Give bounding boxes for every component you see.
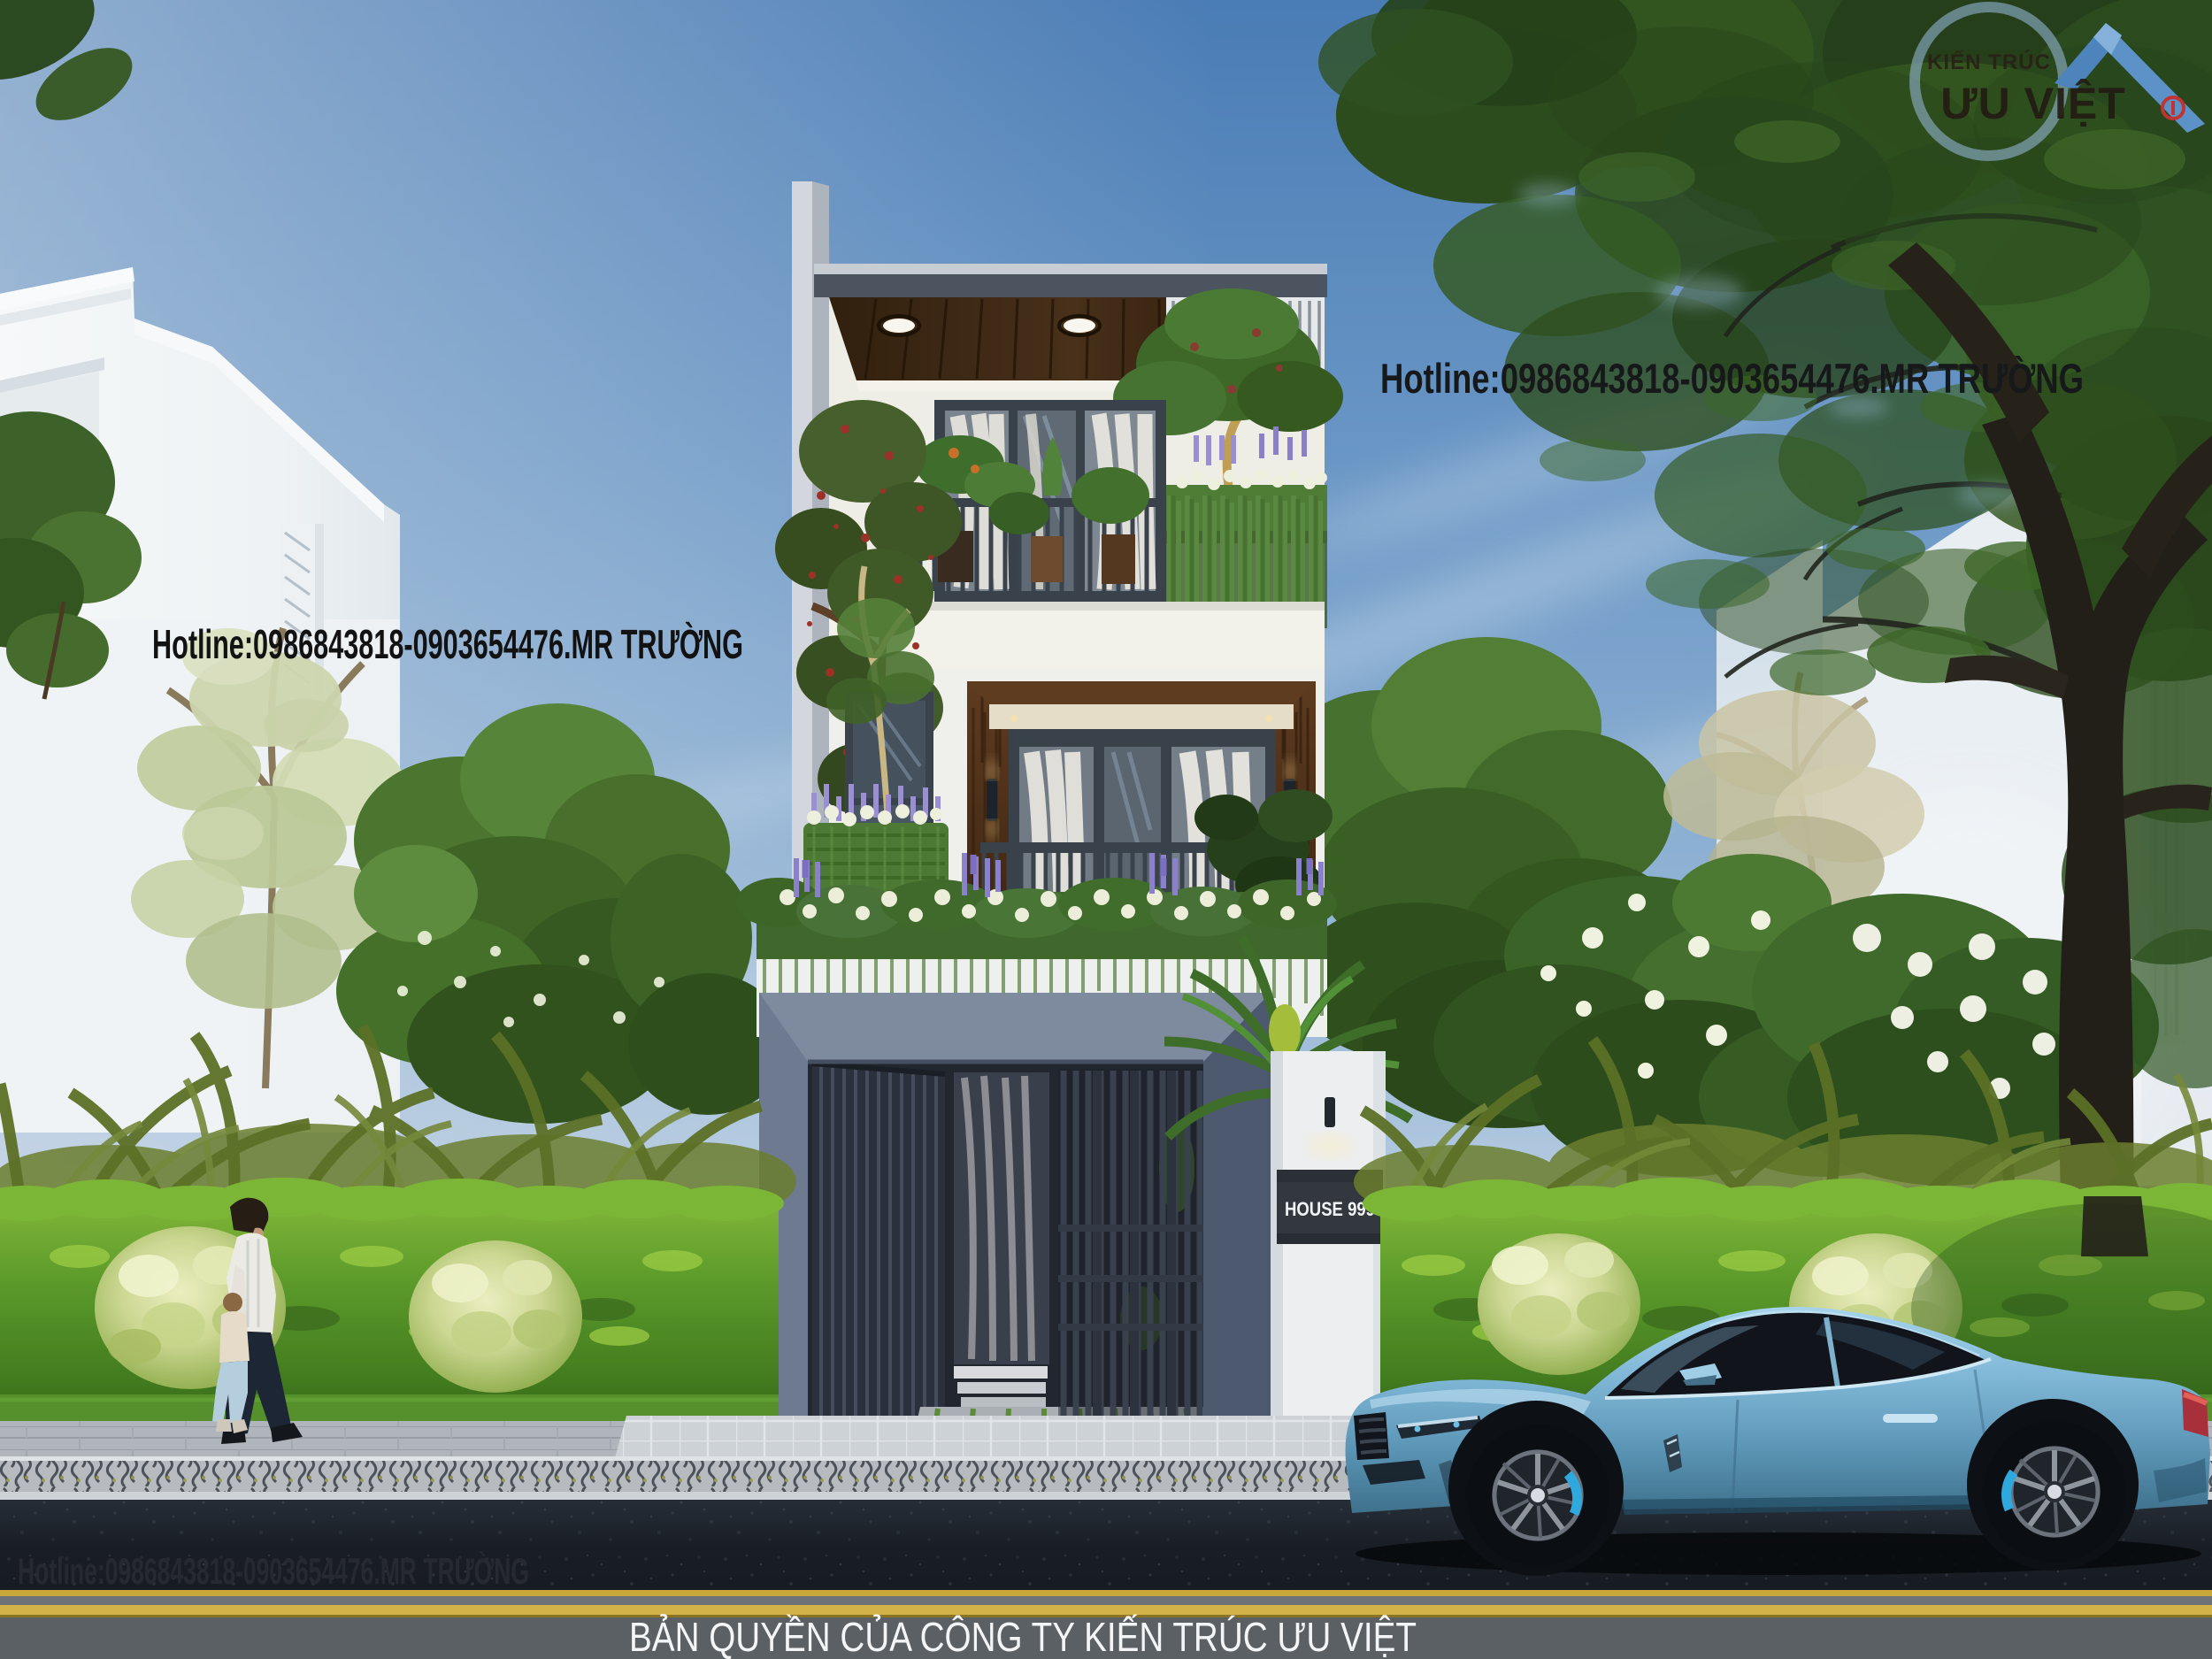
- svg-text:ƯU VIỆT: ƯU VIỆT: [1940, 79, 2126, 128]
- svg-text:KIẾN TRÚC: KIẾN TRÚC: [1927, 50, 2051, 74]
- svg-text:HOUSE 999: HOUSE 999: [1285, 1198, 1375, 1220]
- svg-text:Hotline:0986843818-0903654476.: Hotline:0986843818-0903654476.MR TRƯỜNG: [1380, 355, 2084, 402]
- svg-text:Hotline:0986843818-0903654476.: Hotline:0986843818-0903654476.MR TRƯỜNG: [152, 621, 743, 667]
- svg-text:BẢN QUYỀN CỦA CÔNG TY KIẾN TRÚ: BẢN QUYỀN CỦA CÔNG TY KIẾN TRÚC ƯU VIỆT: [629, 1614, 1417, 1659]
- svg-text:Hotline:0986843818-0903654476.: Hotline:0986843818-0903654476.MR TRƯỜNG: [18, 1549, 529, 1592]
